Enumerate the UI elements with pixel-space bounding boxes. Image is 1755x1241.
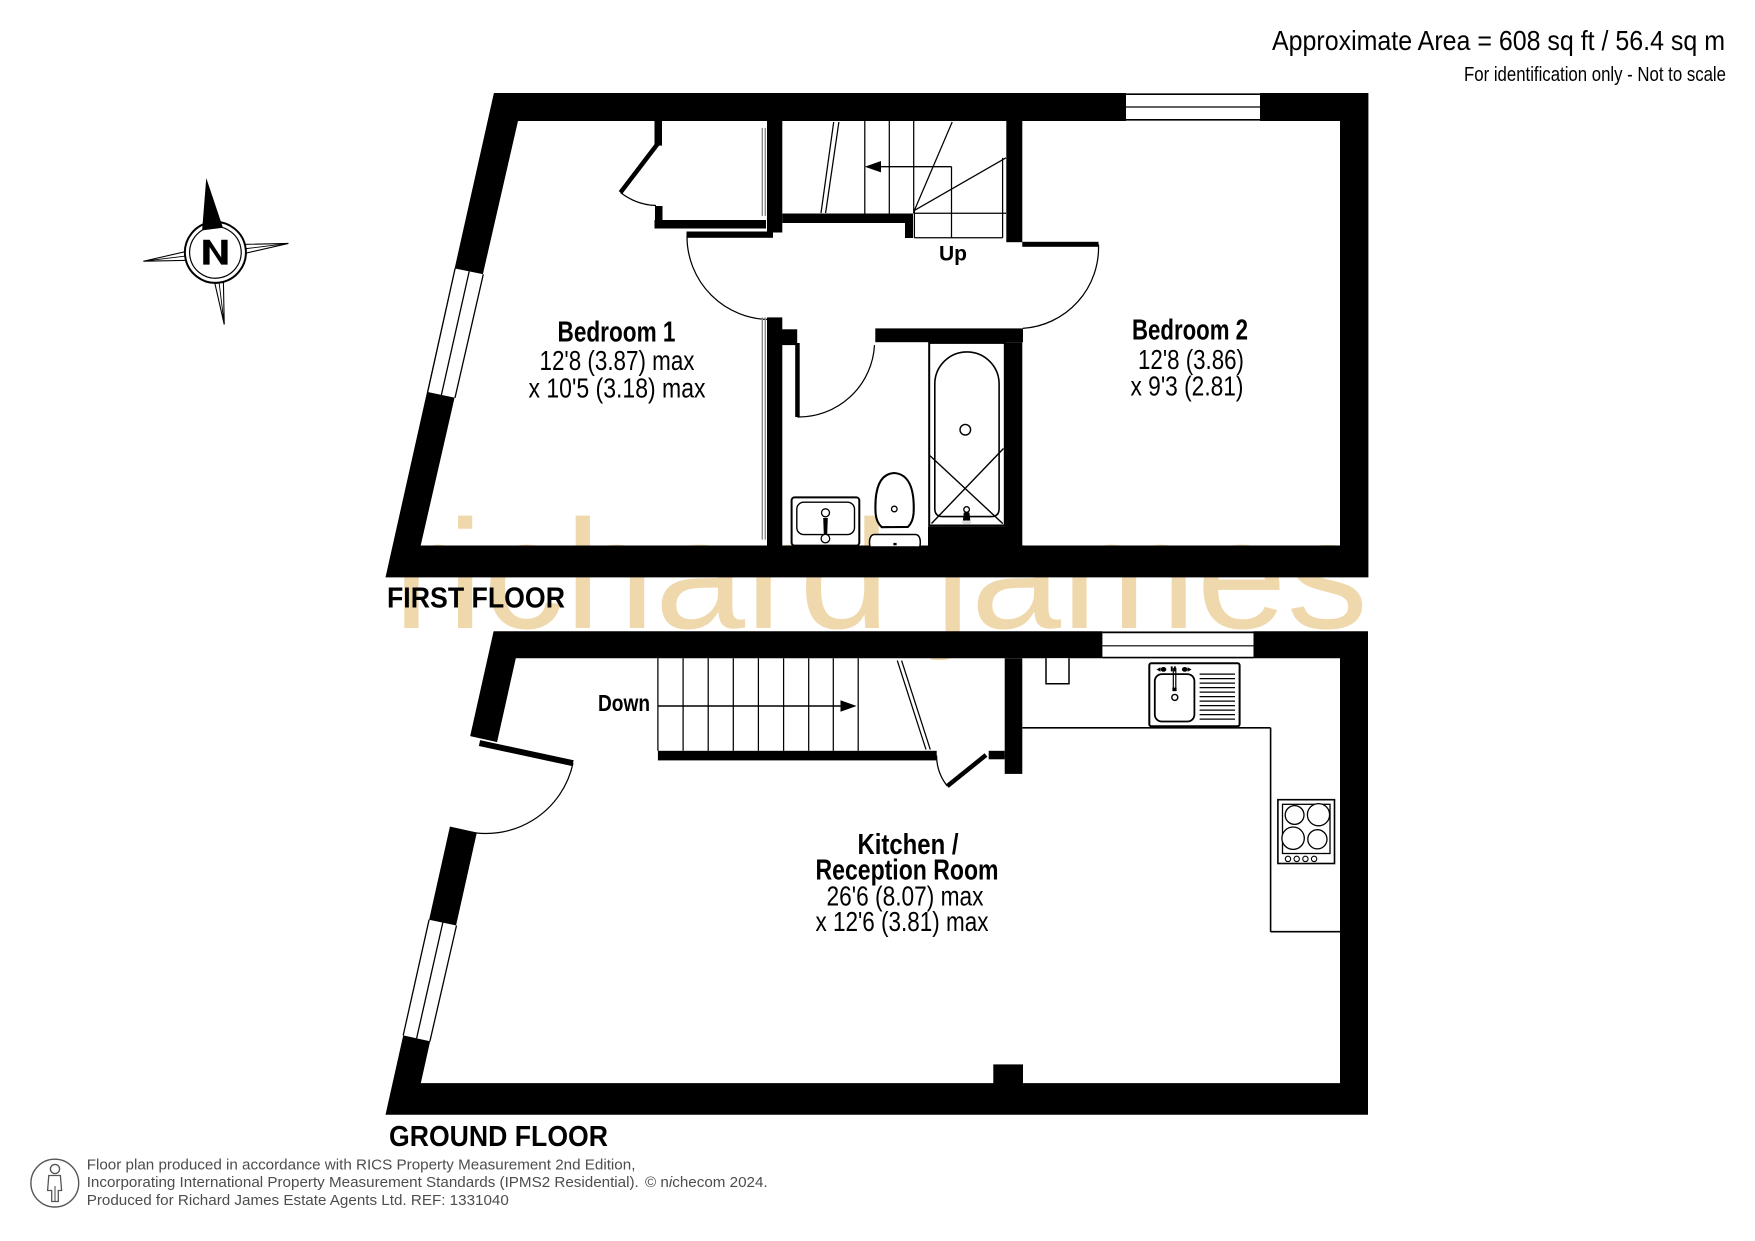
svg-text:For identification only - Not: For identification only - Not to scale [1464, 63, 1726, 86]
svg-text:FIRST FLOOR: FIRST FLOOR [387, 583, 565, 615]
svg-text:x 9'3 (2.81): x 9'3 (2.81) [1131, 371, 1244, 402]
svg-text:x 12'6 (3.81) max: x 12'6 (3.81) max [816, 906, 989, 937]
svg-text:Bedroom 2: Bedroom 2 [1132, 314, 1248, 346]
svg-text:x 10'5 (3.18) max: x 10'5 (3.18) max [529, 372, 706, 403]
svg-text:GROUND FLOOR: GROUND FLOOR [389, 1121, 608, 1153]
svg-text:Produced for Richard James Est: Produced for Richard James Estate Agents… [87, 1192, 509, 1209]
svg-text:Down: Down [598, 690, 650, 716]
svg-text:Approximate Area = 608 sq ft /: Approximate Area = 608 sq ft / 56.4 sq m [1272, 25, 1725, 56]
svg-text:Bedroom 1: Bedroom 1 [558, 317, 676, 349]
svg-text:Up: Up [939, 243, 967, 266]
svg-text:Incorporating International Pr: Incorporating International Property Mea… [87, 1174, 639, 1191]
svg-text:© nichecom 2024.: © nichecom 2024. [645, 1174, 768, 1191]
svg-text:Floor plan produced in accorda: Floor plan produced in accordance with R… [87, 1157, 636, 1174]
